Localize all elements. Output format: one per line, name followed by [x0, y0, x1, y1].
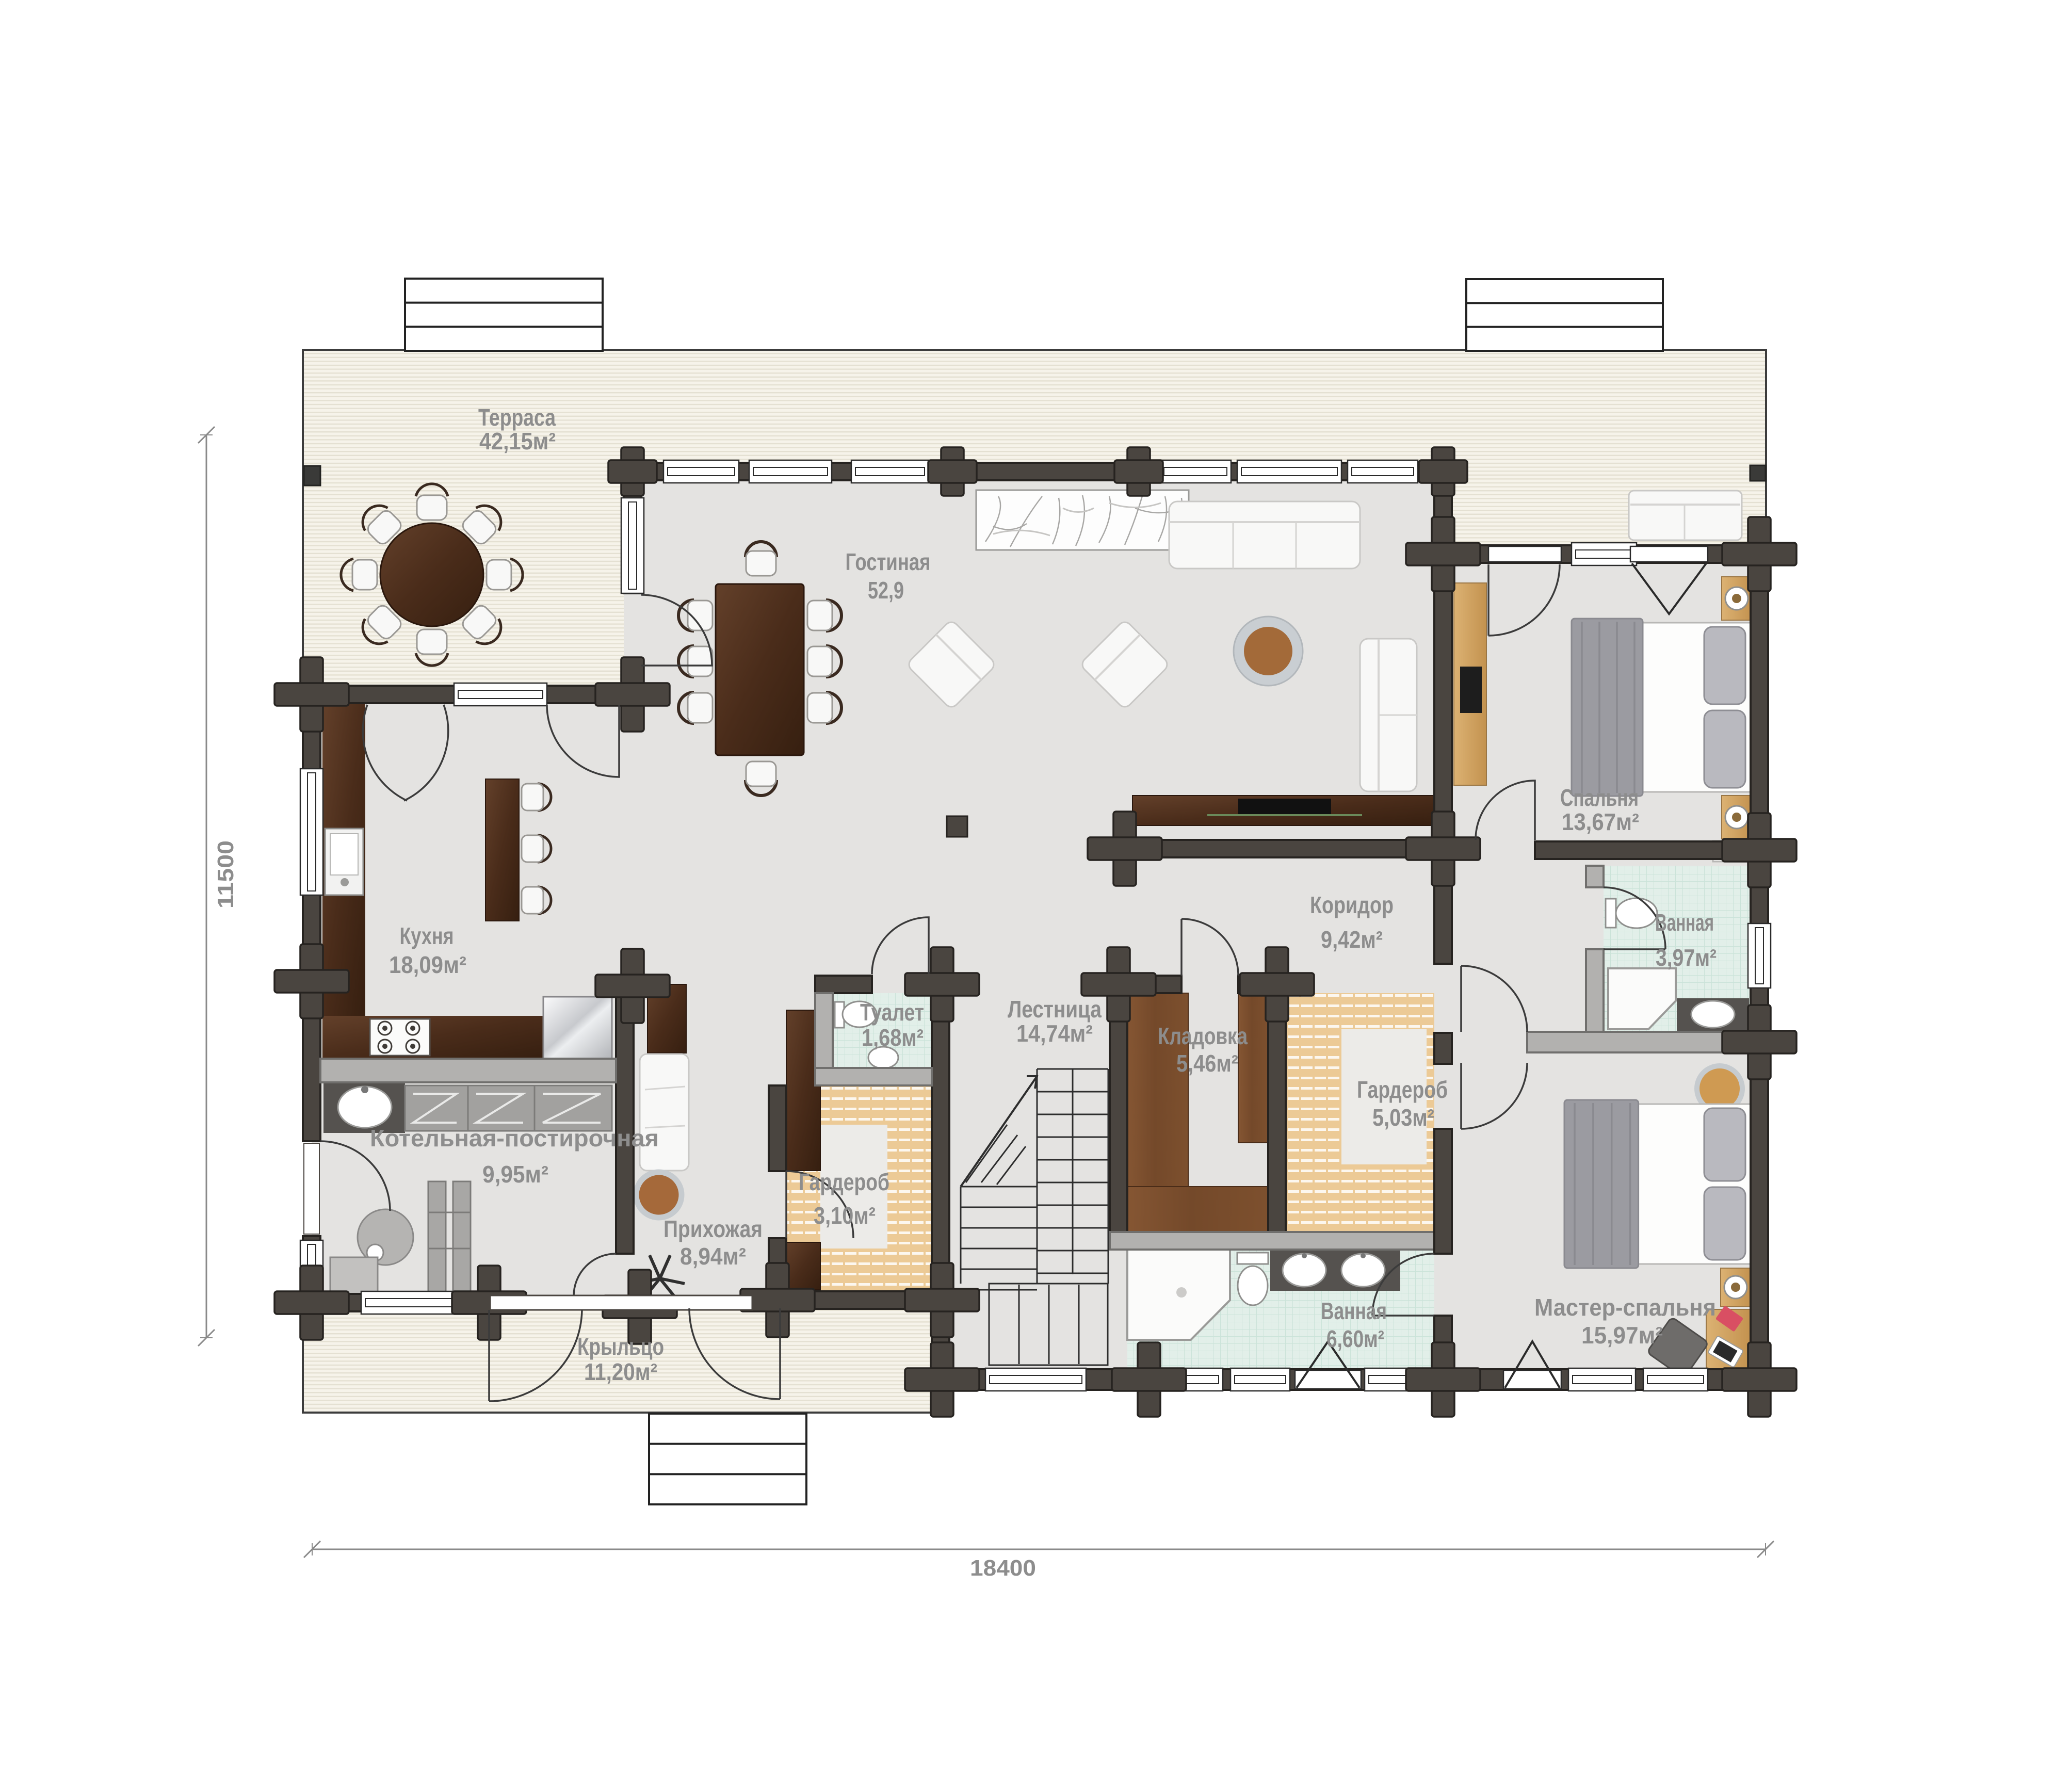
svg-text:3,10м²: 3,10м² — [814, 1202, 876, 1229]
svg-text:Гостиная: Гостиная — [846, 548, 931, 575]
svg-text:Крыльцо: Крыльцо — [577, 1333, 664, 1360]
svg-text:Лестница: Лестница — [1008, 996, 1102, 1023]
svg-text:Котельная-постирочная: Котельная-постирочная — [370, 1125, 659, 1152]
svg-text:Гардероб: Гардероб — [1357, 1076, 1448, 1103]
svg-text:Спальня: Спальня — [1560, 784, 1639, 811]
svg-text:Гардероб: Гардероб — [799, 1169, 889, 1195]
svg-text:15,97м²: 15,97м² — [1581, 1322, 1663, 1349]
svg-text:9,42м²: 9,42м² — [1321, 926, 1383, 953]
svg-text:1,68м²: 1,68м² — [862, 1024, 924, 1051]
svg-text:42,15м²: 42,15м² — [479, 428, 556, 455]
svg-text:Ванная: Ванная — [1321, 1298, 1387, 1324]
svg-text:18400: 18400 — [970, 1555, 1036, 1581]
svg-text:8,94м²: 8,94м² — [680, 1243, 746, 1270]
svg-text:14,74м²: 14,74м² — [1016, 1020, 1093, 1047]
svg-text:9,95м²: 9,95м² — [482, 1161, 548, 1188]
svg-text:11,20м²: 11,20м² — [584, 1358, 657, 1385]
svg-text:Туалет: Туалет — [860, 999, 924, 1026]
svg-text:3,97м²: 3,97м² — [1656, 944, 1717, 971]
svg-text:18,09м²: 18,09м² — [389, 951, 466, 978]
svg-text:5,03м²: 5,03м² — [1372, 1104, 1434, 1131]
svg-text:Ванная: Ванная — [1655, 909, 1714, 936]
svg-text:5,46м²: 5,46м² — [1176, 1050, 1238, 1077]
svg-text:Терраса: Терраса — [478, 404, 556, 431]
svg-text:Коридор: Коридор — [1310, 891, 1394, 918]
svg-text:11500: 11500 — [213, 840, 238, 909]
svg-text:6,60м²: 6,60м² — [1326, 1325, 1384, 1352]
svg-text:13,67м²: 13,67м² — [1562, 808, 1639, 835]
svg-text:52,9: 52,9 — [868, 577, 904, 604]
svg-text:Прихожая: Прихожая — [663, 1215, 763, 1242]
svg-text:Кухня: Кухня — [400, 922, 454, 949]
svg-text:Мастер-спальня: Мастер-спальня — [1534, 1294, 1716, 1321]
svg-text:Кладовка: Кладовка — [1158, 1023, 1248, 1049]
